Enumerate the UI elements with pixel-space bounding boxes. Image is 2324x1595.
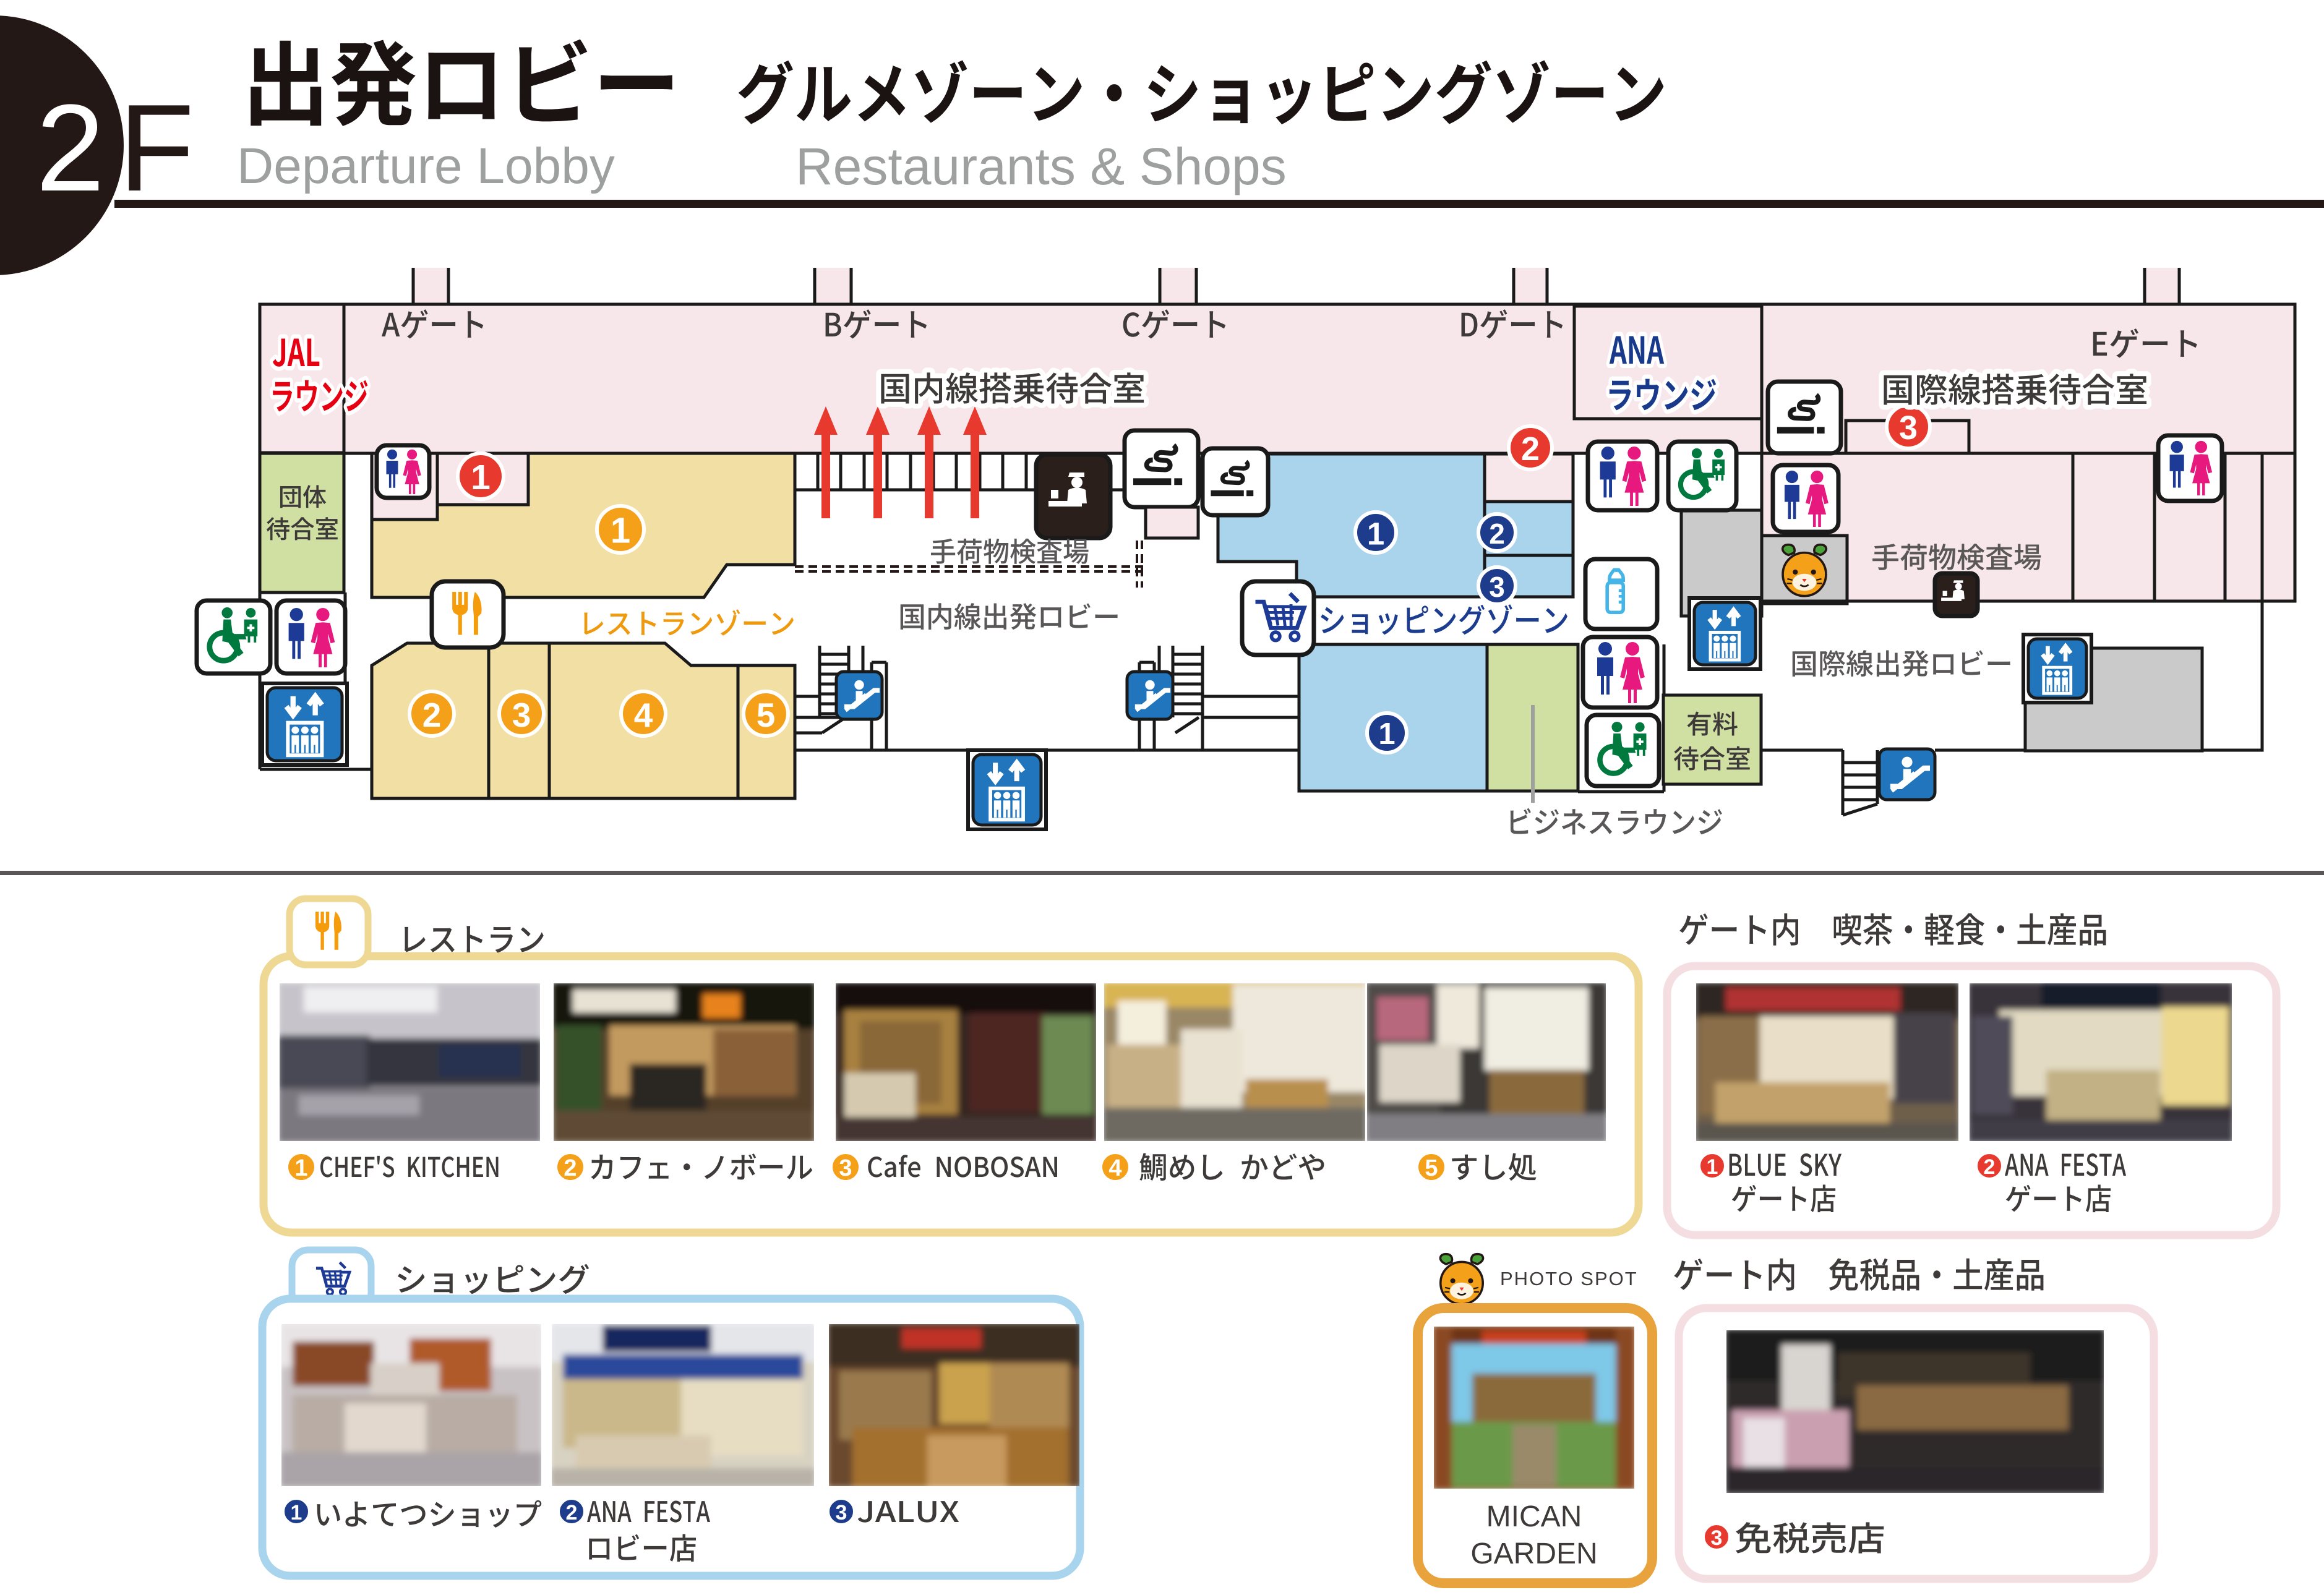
svg-text:2: 2 [1521, 430, 1540, 468]
svg-text:3: 3 [1711, 1526, 1723, 1550]
svg-text:4: 4 [634, 696, 653, 734]
svg-text:1: 1 [1707, 1155, 1718, 1179]
svg-text:1: 1 [294, 1155, 307, 1181]
svg-text:MICAN: MICAN [1486, 1500, 1582, 1533]
svg-text:3: 3 [1899, 409, 1918, 447]
svg-text:3: 3 [512, 696, 531, 734]
svg-text:1: 1 [471, 458, 491, 497]
svg-text:2: 2 [566, 1501, 578, 1524]
svg-text:2: 2 [1984, 1155, 1996, 1179]
svg-text:2: 2 [564, 1155, 577, 1181]
svg-text:2: 2 [1489, 518, 1505, 550]
svg-text:GARDEN: GARDEN [1470, 1537, 1597, 1570]
svg-text:1: 1 [291, 1501, 302, 1524]
svg-text:5: 5 [1425, 1155, 1438, 1181]
svg-text:2: 2 [36, 79, 105, 217]
svg-text:4: 4 [1108, 1155, 1121, 1181]
svg-text:5: 5 [757, 696, 776, 734]
svg-text:Restaurants & Shops: Restaurants & Shops [795, 137, 1287, 195]
svg-text:3: 3 [836, 1501, 847, 1524]
svg-text:PHOTO SPOT: PHOTO SPOT [1500, 1268, 1638, 1289]
svg-text:Departure Lobby: Departure Lobby [237, 138, 615, 194]
svg-text:2: 2 [422, 696, 442, 734]
svg-text:F: F [119, 79, 194, 217]
svg-text:1: 1 [1367, 516, 1384, 552]
svg-text:1: 1 [611, 511, 630, 551]
svg-text:3: 3 [839, 1155, 852, 1181]
svg-text:1: 1 [1378, 717, 1395, 751]
svg-text:3: 3 [1489, 571, 1505, 603]
